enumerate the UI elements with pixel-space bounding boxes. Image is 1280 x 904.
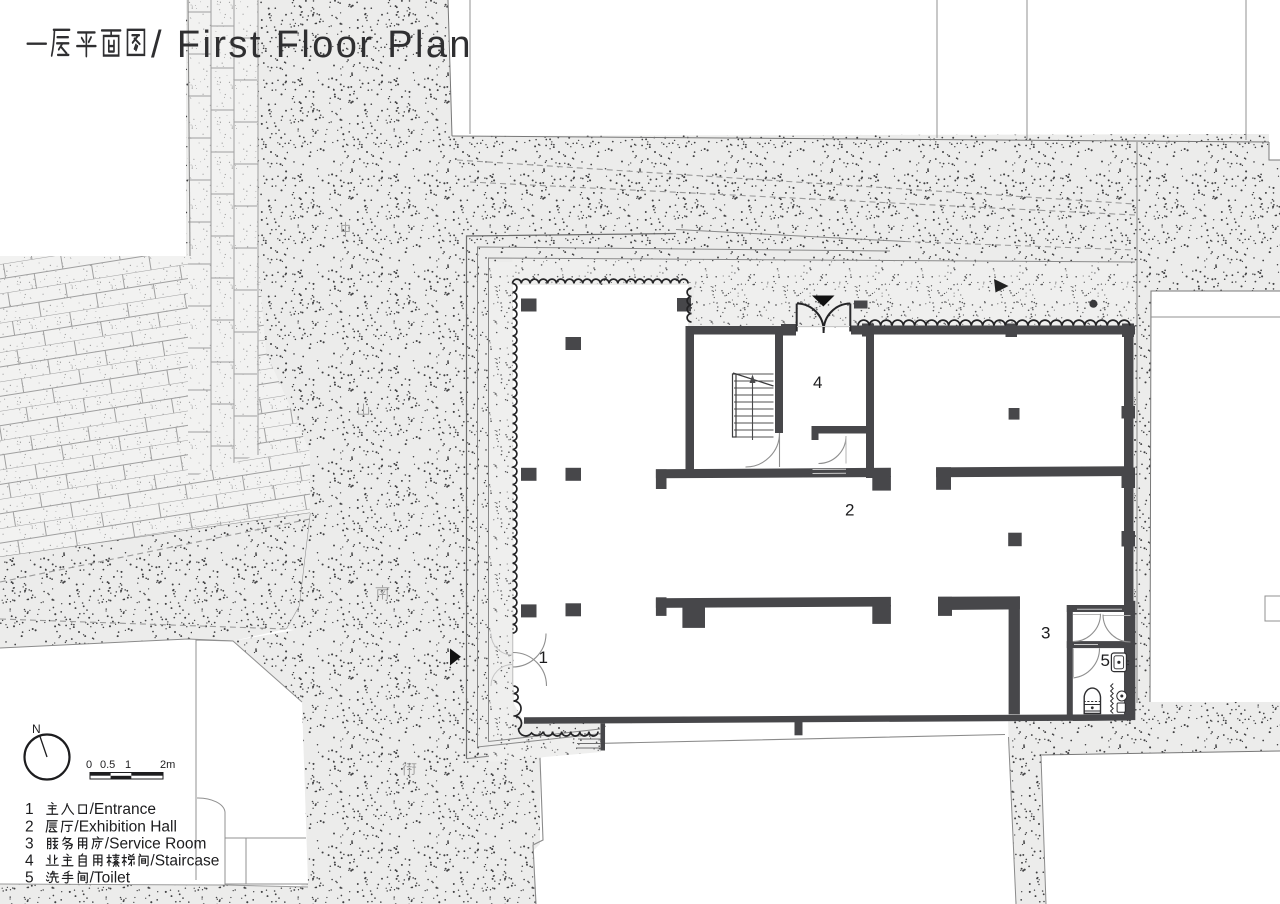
svg-text:0: 0 [86, 759, 92, 771]
svg-text:3: 3 [25, 836, 34, 853]
svg-text:4: 4 [813, 373, 822, 392]
svg-text:/Service Room: /Service Room [105, 836, 207, 853]
svg-text:2: 2 [25, 819, 34, 836]
svg-text:1: 1 [539, 648, 548, 667]
svg-text:N: N [32, 722, 41, 736]
svg-text:/Staircase: /Staircase [150, 853, 219, 870]
svg-text:0.5: 0.5 [100, 759, 115, 771]
svg-text:2: 2 [845, 501, 854, 520]
svg-text:3: 3 [1041, 624, 1050, 643]
svg-text:/Entrance: /Entrance [90, 801, 156, 818]
svg-text:/ First Floor Plan: / First Floor Plan [151, 24, 473, 66]
svg-text:5: 5 [1101, 651, 1110, 670]
svg-text:1: 1 [125, 759, 131, 771]
svg-text:2m: 2m [160, 759, 175, 771]
svg-text:5: 5 [25, 870, 34, 887]
svg-text:/Exhibition Hall: /Exhibition Hall [74, 819, 177, 836]
svg-text:/Toilet: /Toilet [90, 870, 131, 887]
svg-text:1: 1 [25, 801, 34, 818]
svg-text:4: 4 [25, 853, 34, 870]
